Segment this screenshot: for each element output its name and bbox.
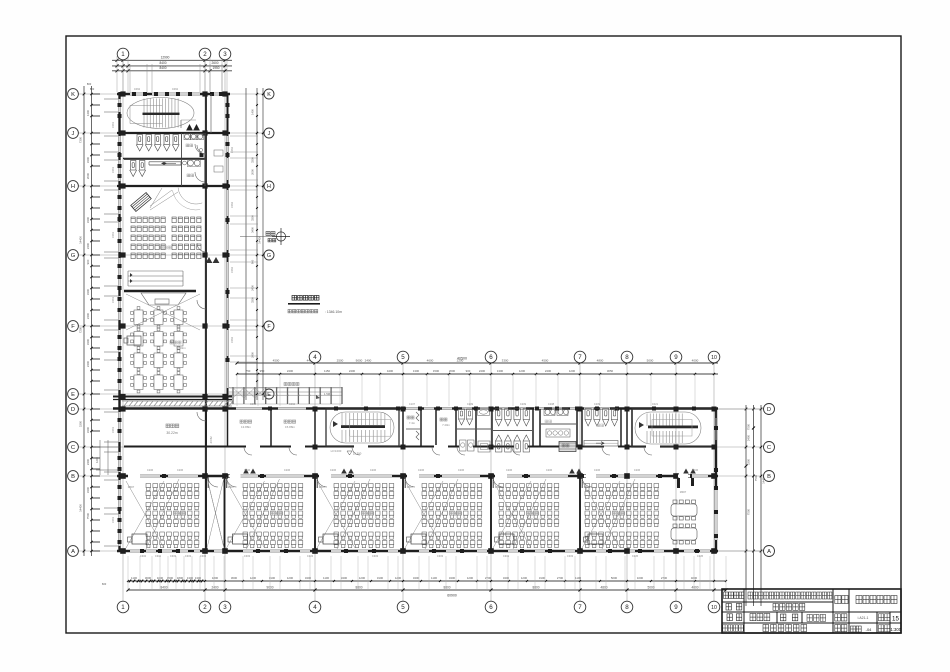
svg-text:1: 1 <box>121 604 125 611</box>
svg-text:C206: C206 <box>692 468 699 472</box>
svg-text:4500: 4500 <box>273 358 280 362</box>
svg-text:3300: 3300 <box>747 458 751 465</box>
svg-text:C062: C062 <box>172 87 179 91</box>
svg-text:J: J <box>72 131 75 137</box>
svg-text:2200: 2200 <box>457 358 464 362</box>
svg-text:1500: 1500 <box>433 369 440 373</box>
svg-text:3300: 3300 <box>79 420 83 427</box>
svg-text:1300: 1300 <box>195 576 202 580</box>
svg-text:5000: 5000 <box>647 358 654 362</box>
svg-text:1300: 1300 <box>187 576 194 580</box>
svg-text:A: A <box>767 549 771 555</box>
svg-text:9000: 9000 <box>356 358 363 362</box>
svg-text:C: C <box>71 445 75 451</box>
svg-text:C303: C303 <box>185 554 192 558</box>
svg-text:C062: C062 <box>230 336 234 343</box>
svg-text:900: 900 <box>466 369 471 373</box>
svg-text:1200: 1200 <box>521 576 528 580</box>
svg-text:1100: 1100 <box>575 576 581 580</box>
svg-text:M907: M907 <box>584 485 591 489</box>
svg-text:1.5M: 1.5M <box>324 392 331 396</box>
svg-text:C062: C062 <box>230 146 234 153</box>
svg-text:1950: 1950 <box>212 66 219 70</box>
svg-text:M907: M907 <box>319 485 326 489</box>
svg-text:C061: C061 <box>111 516 115 523</box>
svg-text:8400: 8400 <box>160 586 167 590</box>
svg-text:C302: C302 <box>155 554 162 558</box>
svg-text:3300: 3300 <box>86 288 90 295</box>
svg-text:8800: 8800 <box>443 586 450 590</box>
svg-text:1200: 1200 <box>359 576 366 580</box>
svg-text:14400: 14400 <box>79 236 83 244</box>
svg-text:2700: 2700 <box>485 576 492 580</box>
svg-text:3300: 3300 <box>251 297 255 303</box>
svg-text:5: 5 <box>401 354 405 361</box>
svg-text:-04: -04 <box>866 627 873 632</box>
svg-text:10: 10 <box>711 605 717 611</box>
svg-text:4800: 4800 <box>597 358 604 362</box>
svg-text:C305: C305 <box>632 554 639 558</box>
svg-text:5: 5 <box>401 604 405 611</box>
svg-text:71.82m: 71.82m <box>453 517 463 521</box>
svg-text:7500: 7500 <box>747 508 751 515</box>
svg-text:C206: C206 <box>458 468 465 472</box>
svg-text:3300: 3300 <box>86 156 90 163</box>
svg-text:4000: 4000 <box>691 576 698 580</box>
svg-text:C303: C303 <box>307 554 314 558</box>
svg-text:M907: M907 <box>495 485 502 489</box>
svg-text:4000: 4000 <box>692 358 699 362</box>
svg-text:1200: 1200 <box>395 576 402 580</box>
svg-text:K: K <box>267 92 271 98</box>
svg-text:JC062: JC062 <box>209 436 213 444</box>
svg-text:3100: 3100 <box>539 576 546 580</box>
svg-text:7500: 7500 <box>754 474 758 481</box>
svg-text:D: D <box>71 407 75 413</box>
svg-text:C062: C062 <box>289 402 296 406</box>
svg-text:1200: 1200 <box>467 576 474 580</box>
svg-text:2000: 2000 <box>86 172 90 179</box>
svg-text:8800: 8800 <box>532 586 539 590</box>
svg-text:C061: C061 <box>111 296 115 303</box>
svg-text:C021: C021 <box>652 402 659 406</box>
svg-text:97.02m: 97.02m <box>176 346 186 350</box>
svg-text:3300: 3300 <box>251 157 255 163</box>
svg-text:C206: C206 <box>418 468 425 472</box>
svg-text:7500: 7500 <box>86 512 90 519</box>
svg-text:2400: 2400 <box>86 312 90 319</box>
svg-text:3000: 3000 <box>145 576 152 580</box>
svg-text:C303: C303 <box>567 554 574 558</box>
svg-text:C062: C062 <box>250 402 257 406</box>
svg-text:G: G <box>267 253 271 259</box>
svg-text:2400: 2400 <box>747 434 751 441</box>
svg-text:3400: 3400 <box>503 576 510 580</box>
svg-text:3600: 3600 <box>231 576 238 580</box>
svg-text:4400: 4400 <box>387 369 394 373</box>
svg-text:4: 4 <box>313 354 317 361</box>
svg-text:C303: C303 <box>200 554 207 558</box>
svg-text:2400: 2400 <box>349 369 356 373</box>
svg-text:C303: C303 <box>170 554 177 558</box>
svg-text:15.88m: 15.88m <box>285 425 296 429</box>
svg-text:H: H <box>71 184 75 190</box>
svg-text:2400: 2400 <box>251 352 255 358</box>
svg-text:1: 1 <box>121 51 125 58</box>
svg-text:1200: 1200 <box>519 369 526 373</box>
svg-text:2400: 2400 <box>86 360 90 367</box>
svg-text:2400: 2400 <box>86 242 90 249</box>
svg-text:H: H <box>267 184 271 190</box>
svg-text:M907: M907 <box>128 485 135 489</box>
svg-text:E: E <box>267 392 271 398</box>
svg-text:3300: 3300 <box>86 486 90 493</box>
svg-text:C206: C206 <box>244 468 251 472</box>
svg-text:C206: C206 <box>594 468 601 472</box>
svg-text:5000: 5000 <box>647 586 654 590</box>
svg-text:1200: 1200 <box>287 576 294 580</box>
svg-text:9: 9 <box>674 604 678 611</box>
svg-text:800: 800 <box>90 87 95 91</box>
svg-text:C303: C303 <box>503 554 510 558</box>
svg-text:71.82m: 71.82m <box>530 517 540 521</box>
svg-text:1800: 1800 <box>177 576 184 580</box>
svg-text:1100: 1100 <box>131 576 137 580</box>
svg-text:C206: C206 <box>506 468 513 472</box>
svg-text:2: 2 <box>203 604 207 611</box>
svg-text:C208: C208 <box>548 402 555 406</box>
svg-text:E: E <box>71 392 75 398</box>
svg-text:4600: 4600 <box>427 358 434 362</box>
svg-text:C303: C303 <box>244 554 251 558</box>
svg-text:8: 8 <box>625 604 629 611</box>
svg-text:1400: 1400 <box>251 109 255 115</box>
svg-text:2500: 2500 <box>337 358 344 362</box>
svg-text:C305: C305 <box>697 554 704 558</box>
svg-text:B: B <box>71 474 75 480</box>
svg-text:3400: 3400 <box>341 576 348 580</box>
svg-text:71.82m: 71.82m <box>274 517 284 521</box>
svg-text:600: 600 <box>102 582 107 586</box>
svg-text:3300: 3300 <box>86 338 90 345</box>
svg-text:2600: 2600 <box>211 61 218 65</box>
svg-text:C062: C062 <box>230 201 234 208</box>
svg-text:C061: C061 <box>111 121 115 128</box>
svg-text:71.82m: 71.82m <box>616 517 626 521</box>
svg-text:60900: 60900 <box>447 594 457 598</box>
svg-text:C209: C209 <box>594 402 601 406</box>
svg-text:C062: C062 <box>230 266 234 273</box>
svg-text:4: 4 <box>313 604 317 611</box>
svg-text:2400: 2400 <box>251 285 255 291</box>
svg-text:1800: 1800 <box>212 576 219 580</box>
svg-text:1000: 1000 <box>637 576 644 580</box>
svg-text:3400: 3400 <box>413 576 420 580</box>
svg-text:8400: 8400 <box>159 61 166 65</box>
svg-text:750: 750 <box>246 369 251 373</box>
svg-text:A: A <box>71 549 75 555</box>
svg-text:C: C <box>767 445 771 451</box>
svg-text:2400: 2400 <box>86 458 90 465</box>
svg-text:1000: 1000 <box>157 576 164 580</box>
svg-text:M907: M907 <box>680 490 687 494</box>
svg-text:8: 8 <box>625 354 629 361</box>
svg-text:5000: 5000 <box>611 576 618 580</box>
svg-text:7300: 7300 <box>79 136 83 143</box>
svg-text:7.20m: 7.20m <box>442 423 450 427</box>
svg-text:2400: 2400 <box>365 358 372 362</box>
svg-text:4500: 4500 <box>542 358 549 362</box>
svg-text:1:300: 1:300 <box>891 627 902 632</box>
svg-text:950: 950 <box>260 369 265 373</box>
svg-text:12900: 12900 <box>161 56 170 60</box>
svg-text:C209: C209 <box>520 402 527 406</box>
svg-text:6: 6 <box>489 604 493 611</box>
svg-text:2: 2 <box>203 51 207 58</box>
svg-text:C206: C206 <box>284 468 291 472</box>
svg-text:7500: 7500 <box>747 423 751 430</box>
svg-text:1200: 1200 <box>569 369 576 373</box>
svg-text:M907: M907 <box>228 485 235 489</box>
svg-text:C061: C061 <box>111 231 115 238</box>
svg-text:J: J <box>268 131 271 137</box>
svg-text:B: B <box>767 474 771 480</box>
svg-text:13.88m: 13.88m <box>241 425 252 429</box>
svg-text:3: 3 <box>223 604 227 611</box>
svg-text:K: K <box>71 92 75 98</box>
svg-text:C107: C107 <box>409 402 416 406</box>
svg-text:15.300: 15.300 <box>353 452 362 456</box>
svg-text:C206: C206 <box>147 468 154 472</box>
svg-text:2400: 2400 <box>479 369 486 373</box>
svg-text:3050: 3050 <box>607 369 614 373</box>
svg-text:1100: 1100 <box>431 576 437 580</box>
svg-text:1100: 1100 <box>323 576 329 580</box>
svg-text:G: G <box>71 253 76 259</box>
svg-text:1300: 1300 <box>413 369 420 373</box>
svg-text:4000: 4000 <box>691 586 698 590</box>
svg-text:M907: M907 <box>407 485 414 489</box>
svg-text:8400: 8400 <box>159 66 166 70</box>
svg-text:2000: 2000 <box>449 369 456 373</box>
svg-text:2700: 2700 <box>557 576 564 580</box>
svg-text:2400: 2400 <box>287 369 294 373</box>
svg-text:800: 800 <box>87 82 92 86</box>
svg-text:4800: 4800 <box>600 586 607 590</box>
svg-text:C206: C206 <box>177 468 184 472</box>
svg-text:14400: 14400 <box>258 236 262 244</box>
svg-text:9: 9 <box>674 354 678 361</box>
svg-text:3300: 3300 <box>86 216 90 223</box>
svg-text:C302: C302 <box>140 554 147 558</box>
svg-text:900: 900 <box>86 259 90 264</box>
svg-text:i.A21-1: i.A21-1 <box>858 616 869 620</box>
svg-text:2000: 2000 <box>251 169 255 175</box>
svg-text:2700: 2700 <box>661 576 668 580</box>
svg-text:3400: 3400 <box>305 576 312 580</box>
svg-text:2400: 2400 <box>211 586 218 590</box>
svg-text:6: 6 <box>489 354 493 361</box>
svg-text:15: 15 <box>892 616 899 623</box>
svg-text:H=3.000: H=3.000 <box>331 449 342 453</box>
svg-text:7: 7 <box>578 604 582 611</box>
svg-text:1200: 1200 <box>250 576 257 580</box>
svg-text:3300: 3300 <box>502 358 509 362</box>
svg-text:3400: 3400 <box>449 576 456 580</box>
svg-text:C062: C062 <box>134 87 141 91</box>
svg-text:1200: 1200 <box>95 457 99 463</box>
svg-text:7.4m: 7.4m <box>409 421 416 425</box>
svg-text:1300: 1300 <box>497 369 504 373</box>
svg-text:C061: C061 <box>111 166 115 173</box>
svg-text:C209: C209 <box>467 402 474 406</box>
svg-text:7: 7 <box>578 354 582 361</box>
svg-text:C206: C206 <box>370 468 377 472</box>
svg-text:3300: 3300 <box>86 426 90 433</box>
svg-text:3400: 3400 <box>251 227 255 233</box>
svg-text:C303: C303 <box>437 554 444 558</box>
svg-text:71.82m: 71.82m <box>177 517 187 521</box>
svg-text:F: F <box>71 324 75 330</box>
svg-text:30.22m: 30.22m <box>166 431 177 435</box>
svg-text:8800: 8800 <box>355 586 362 590</box>
svg-text:71.82m: 71.82m <box>365 517 375 521</box>
svg-text:C061: C061 <box>111 426 115 433</box>
svg-text:1150: 1150 <box>324 369 330 373</box>
svg-text:C206: C206 <box>546 468 553 472</box>
svg-text:D: D <box>767 407 771 413</box>
svg-text:1400: 1400 <box>86 109 90 116</box>
svg-text:10: 10 <box>711 355 717 361</box>
svg-text:14400: 14400 <box>79 504 83 512</box>
svg-text:3300: 3300 <box>251 215 255 221</box>
svg-text:C303: C303 <box>372 554 379 558</box>
svg-text:7200: 7200 <box>79 326 83 333</box>
svg-text:C206: C206 <box>634 468 641 472</box>
svg-text:3100: 3100 <box>377 576 384 580</box>
svg-text:: 1346.10m: : 1346.10m <box>325 310 342 314</box>
svg-text:3: 3 <box>223 51 227 58</box>
svg-text:C206: C206 <box>330 468 337 472</box>
svg-text:900: 900 <box>251 259 255 264</box>
svg-text:2400: 2400 <box>545 369 552 373</box>
